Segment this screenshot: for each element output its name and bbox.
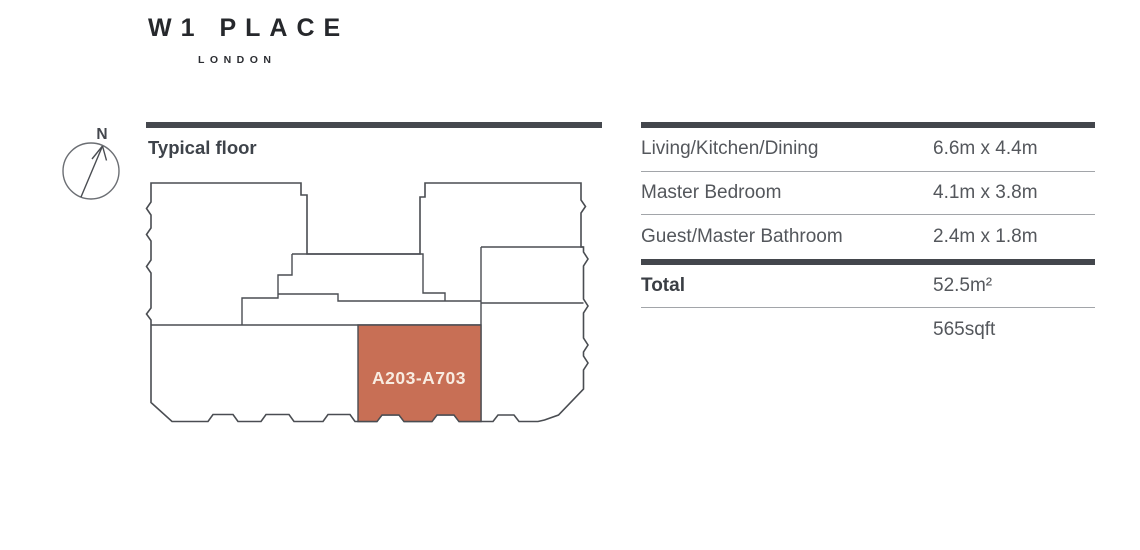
total-area-sqft: 565sqft <box>933 319 995 341</box>
page: W1 PLACE LONDON Typical floor N A203-A70… <box>0 0 1140 550</box>
room-label: Master Bedroom <box>641 182 933 204</box>
table-row: Master Bedroom 4.1m x 3.8m <box>641 172 1095 216</box>
total-area-metric: 52.5m² <box>933 275 992 297</box>
dimensions-table: Living/Kitchen/Dining 6.6m x 4.4m Master… <box>641 122 1095 352</box>
table-row: Guest/Master Bathroom 2.4m x 1.8m <box>641 215 1095 259</box>
room-label: Living/Kitchen/Dining <box>641 138 933 160</box>
room-dimensions: 4.1m x 3.8m <box>933 182 1038 204</box>
room-dimensions: 2.4m x 1.8m <box>933 226 1038 248</box>
room-dimensions: 6.6m x 4.4m <box>933 138 1038 160</box>
table-row-sqft: 565sqft <box>641 308 1095 352</box>
total-label: Total <box>641 275 933 297</box>
floor-plan: A203-A703 <box>0 0 620 440</box>
table-row: Living/Kitchen/Dining 6.6m x 4.4m <box>641 128 1095 172</box>
room-label: Guest/Master Bathroom <box>641 226 933 248</box>
table-row-total: Total 52.5m² <box>641 265 1095 309</box>
highlighted-unit-label: A203-A703 <box>372 368 466 388</box>
